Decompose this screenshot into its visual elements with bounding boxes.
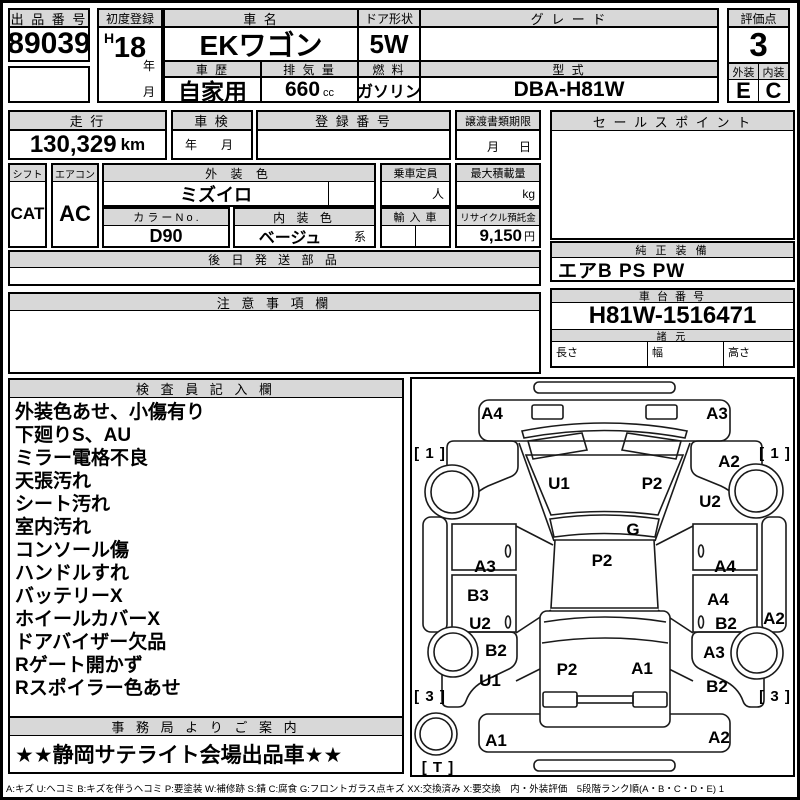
damage-code-label: B3 [467,586,489,605]
color-number-box: カ ラ ー N o . D90 [102,207,230,248]
aircon-value: AC [53,182,97,246]
import-car-sub-cell [415,226,449,246]
auction-number-empty-box [8,66,90,103]
inspector-note-line: 天張汚れ [15,470,397,493]
inspector-note-line: 外装色あせ、小傷有り [15,401,397,424]
evaluation-box: 評価点 3 外装 内装 E C [727,8,790,103]
sales-point-value [552,131,793,238]
tire-depth-marker: [ 1 ] [414,445,446,462]
damage-code-label: A2 [763,609,785,628]
aircon-box: エアコン AC [51,163,99,248]
recycle-deposit-unit: 円 [524,228,535,244]
auction-number-value: 89039 [10,28,88,60]
score-value: 3 [729,28,788,64]
transfer-deadline-value: 月 日 [457,131,539,158]
specs-label: 諸 元 [552,330,793,342]
inspector-note-line: 室内汚れ [15,516,397,539]
damage-code-label: A2 [708,728,730,747]
inspector-note-line: Rゲート開かず [15,654,397,677]
score-label: 評価点 [729,10,788,28]
damage-code-label: A4 [714,557,736,576]
import-car-box: 輸 入 車 [380,207,451,248]
rear-bumper-shape [534,760,675,771]
car-name-value: EKワゴン [165,28,357,62]
later-shipped-parts-box: 後 日 発 送 部 品 [8,250,541,286]
spec-length-cell: 長さ [552,342,647,366]
color-number-value: D90 [104,226,228,246]
capacity-unit: 人 [382,182,449,205]
capacity-label: 乗車定員 [382,165,449,182]
registration-number-value [258,131,449,158]
max-load-unit: kg [457,182,539,205]
mileage-unit: km [121,135,146,155]
office-notice-box: 事 務 局 よ り ご 案 内 ★★静岡サテライト会場出品車★★ [8,716,404,774]
inspection-value: 年 月 [173,131,251,158]
inspector-note-line: ホイールカバーX [15,608,397,631]
shift-box: シフト CAT [8,163,47,248]
fuel-label: 燃 料 [357,62,419,78]
mileage-label: 走 行 [10,112,165,131]
chassis-number-box: 車 台 番 号 H81W-1516471 諸 元 長さ 幅 高さ [550,288,795,368]
inspector-note-line: 下廻りS、AU [15,424,397,447]
damage-code-label: A2 [718,452,740,471]
door-shape-label: ドア形状 [357,10,419,28]
grade-value [419,28,717,62]
auction-number-box: 出 品 番 号 89039 [8,8,90,62]
inspector-notes-list: 外装色あせ、小傷有り下廻りS、AUミラー電格不良天張汚れシート汚れ室内汚れコンソ… [10,398,402,716]
damage-code-label: B2 [706,677,728,696]
damage-code-label: U1 [479,671,501,690]
shift-value: CAT [10,182,45,246]
model-code-value: DBA-H81W [419,78,717,101]
damage-code-label: P2 [592,551,613,570]
damage-code-label: A1 [485,731,507,750]
later-shipped-parts-value [10,268,539,284]
mileage-box: 走 行 130,329 km [8,110,167,160]
mileage-number: 130,329 [30,131,117,158]
inspector-notes-box: 検 査 員 記 入 欄 外装色あせ、小傷有り下廻りS、AUミラー電格不良天張汚れ… [8,378,404,718]
fuel-value: ガソリン [357,78,419,101]
shift-label: シフト [10,165,45,182]
damage-code-label: U1 [548,474,570,493]
inspection-label: 車 検 [173,112,251,131]
factory-equipment-label: 純 正 装 備 [552,243,793,258]
exterior-color-value: ミズイロ [104,182,328,205]
inspector-note-line: Rスポイラー色あせ [15,677,397,700]
vehicle-info-table: 車 名 ドア形状 グ レ ー ド EKワゴン 5W 車 歴 排 気 量 燃 料 … [163,8,719,103]
first-registration-box: 初度登録 H 18 年 月 [97,8,163,103]
spec-width-cell: 幅 [647,342,723,366]
recycle-deposit-value: 9,150 円 [457,226,539,246]
factory-equipment-box: 純 正 装 備 エアB PS PW [550,241,795,282]
chassis-number-value: H81W-1516471 [552,303,793,330]
inspection-box: 車 検 年 月 [171,110,253,160]
registration-number-box: 登 録 番 号 [256,110,451,160]
recycle-deposit-box: リサイクル預託金 9,150 円 [455,207,541,248]
damage-code-label: G [626,520,639,539]
door-shape-value: 5W [357,28,419,62]
interior-color-box: 内 装 色 ベージュ 系 [233,207,376,248]
transfer-deadline-box: 譲渡書類期限 月 日 [455,110,541,160]
sales-point-label: セ ー ル ス ポ イ ン ト [552,112,793,131]
max-load-label: 最大積載量 [457,165,539,182]
damage-legend: A:キズ U:ヘコミ B:キズを伴うヘコミ P:要塗装 W:補修跡 S:錆 C:… [6,781,796,795]
inspector-note-line: ハンドルすれ [15,562,397,585]
damage-code-label: A4 [707,590,729,609]
damage-code-label: B2 [485,641,507,660]
tire-depth-marker: [ 1 ] [759,445,791,462]
tire-depth-marker: [ 3 ] [414,688,446,705]
damage-code-label: A3 [706,404,728,423]
auction-number-label: 出 品 番 号 [10,10,88,28]
aircon-label: エアコン [53,165,97,182]
displacement-unit: cc [323,87,334,101]
transfer-deadline-label: 譲渡書類期限 [457,112,539,131]
interior-color-value: ベージュ [235,226,345,246]
damage-code-label: A4 [481,404,503,423]
displacement-number: 660 [285,78,320,101]
interior-color-suffix: 系 [352,228,368,244]
caution-label: 注 意 事 項 欄 [10,294,539,311]
registration-number-label: 登 録 番 号 [258,112,449,131]
office-notice-label: 事 務 局 よ り ご 案 内 [10,718,402,736]
tire-depth-marker: [ T ] [422,759,455,775]
damage-code-label: P2 [557,660,578,679]
first-registration-label: 初度登録 [99,10,161,28]
damage-code-label: A3 [703,643,725,662]
damage-code-label: U2 [699,492,721,511]
exterior-color-box: 外 装 色 ミズイロ [102,163,376,207]
capacity-box: 乗車定員 人 [380,163,451,207]
year-suffix: 年 [142,58,156,72]
interior-color-label: 内 装 色 [235,209,374,226]
mileage-value: 130,329 km [10,131,165,158]
car-damage-diagram: A4A3U1P2A2U2GP2A3A4B3A4U2B2A2B2A3P2A1U1B… [412,379,793,775]
factory-equipment-value: エアB PS PW [552,258,793,280]
front-panel-shape [479,400,730,441]
auction-sheet: 出 品 番 号 89039 初度登録 H 18 年 月 車 名 ドア形状 グ レ… [0,0,800,800]
displacement-label: 排 気 量 [260,62,357,78]
import-car-label: 輸 入 車 [382,209,449,226]
model-code-label: 型 式 [419,62,717,78]
month-suffix: 月 [142,84,156,98]
damage-diagram-panel: A4A3U1P2A2U2GP2A3A4B3A4U2B2A2B2A3P2A1U1B… [410,377,795,777]
grade-label: グ レ ー ド [419,10,717,28]
history-label: 車 歴 [165,62,260,78]
max-load-box: 最大積載量 kg [455,163,541,207]
inspector-note-line: ミラー電格不良 [15,447,397,470]
exterior-color-label: 外 装 色 [104,165,374,182]
later-shipped-parts-label: 後 日 発 送 部 品 [10,252,539,268]
history-value: 自家用 [165,78,260,101]
inspector-note-line: シート汚れ [15,493,397,516]
chassis-number-label: 車 台 番 号 [552,290,793,303]
recycle-deposit-label: リサイクル預託金 [457,209,539,226]
damage-code-label: P2 [642,474,663,493]
inspector-note-line: バッテリーX [15,585,397,608]
interior-grade-value: C [758,80,788,101]
caution-value [10,311,539,372]
exterior-grade-label: 外装 [729,64,758,80]
spec-height-cell: 高さ [723,342,793,366]
recycle-deposit-number: 9,150 [479,226,522,246]
exterior-grade-value: E [729,80,758,101]
inspector-note-line: コンソール傷 [15,539,397,562]
color-number-label: カ ラ ー N o . [104,209,228,226]
exterior-color-sub-cell [328,182,374,205]
damage-code-label: A3 [474,557,496,576]
damage-code-label: A1 [631,659,653,678]
car-name-label: 車 名 [165,10,357,28]
damage-code-label: B2 [715,614,737,633]
damage-code-label: U2 [469,614,491,633]
front-bumper-shape [534,382,675,393]
caution-box: 注 意 事 項 欄 [8,292,541,374]
inspector-note-line: ドアバイザー欠品 [15,631,397,654]
tire-depth-marker: [ 3 ] [759,688,791,705]
office-notice-value: ★★静岡サテライト会場出品車★★ [10,736,402,772]
inspector-notes-label: 検 査 員 記 入 欄 [10,380,402,398]
sales-point-box: セ ー ル ス ポ イ ン ト [550,110,795,240]
interior-grade-label: 内装 [758,64,788,80]
displacement-value: 660 cc [260,78,357,101]
